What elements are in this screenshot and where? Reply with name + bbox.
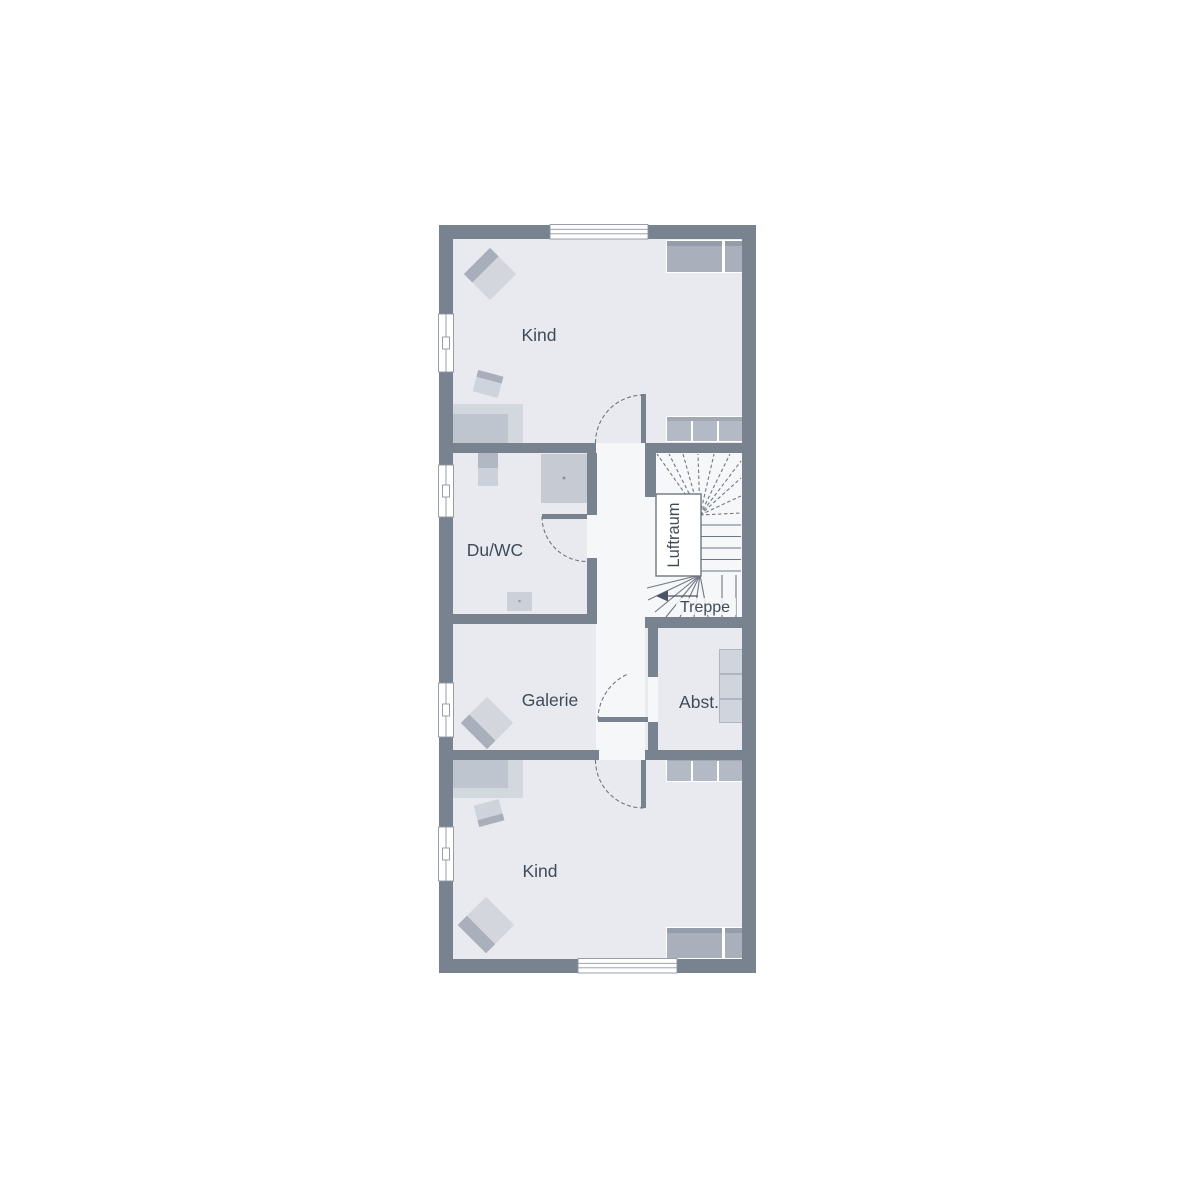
window-left-2 (439, 465, 454, 517)
floor-plan-page: Kind Du/WC Galerie Abst. Kind Luftraum T… (0, 0, 1200, 1200)
window-left-1 (439, 314, 454, 372)
wall-kindtop-stair (645, 443, 756, 453)
wall-galerie-kindbottom (439, 750, 599, 760)
room-label-kind-bottom: Kind (522, 861, 557, 881)
wardrobe-lower-right (666, 416, 744, 442)
abst-door-threshold (648, 677, 658, 722)
room-label-abst: Abst. (679, 692, 719, 712)
desk (452, 404, 523, 443)
shower (541, 454, 587, 503)
luftraum-label: Luftraum (665, 502, 683, 567)
room-label-duwc: Du/WC (467, 540, 523, 560)
window-top (550, 225, 648, 240)
washbasin (478, 453, 498, 486)
hall-floor (596, 443, 645, 760)
door-leaf-kind-top (641, 394, 646, 443)
window-left-4 (439, 827, 454, 881)
floor-plan: Kind Du/WC Galerie Abst. Kind Luftraum T… (0, 0, 1200, 1200)
room-label-kind-top: Kind (521, 325, 556, 345)
room-label-galerie: Galerie (522, 690, 578, 710)
wardrobe-top-right (666, 240, 744, 273)
wall-abst-west-upper (648, 628, 658, 677)
wall-abst-kindbottom (645, 750, 756, 760)
door-leaf-abst (598, 717, 648, 722)
desk (452, 759, 523, 798)
wall-kindtop-duwc (439, 443, 596, 453)
door-leaf-kind-bottom (641, 760, 646, 808)
duwc-door-threshold (587, 515, 597, 558)
toilet (507, 592, 532, 611)
window-bottom (578, 959, 677, 974)
wardrobe-bottom-right (666, 927, 744, 959)
door-leaf-duwc (542, 514, 587, 519)
wall-duwc-east-upper (587, 453, 597, 515)
wall-duwc-galerie (439, 614, 597, 624)
wall-abst-west-lower (648, 722, 658, 750)
window-left-3 (439, 683, 454, 737)
wall-outer-right (742, 225, 756, 973)
wall-stair-west (645, 453, 656, 497)
treppe-label: Treppe (680, 599, 730, 616)
wall-stair-abst (645, 617, 756, 628)
